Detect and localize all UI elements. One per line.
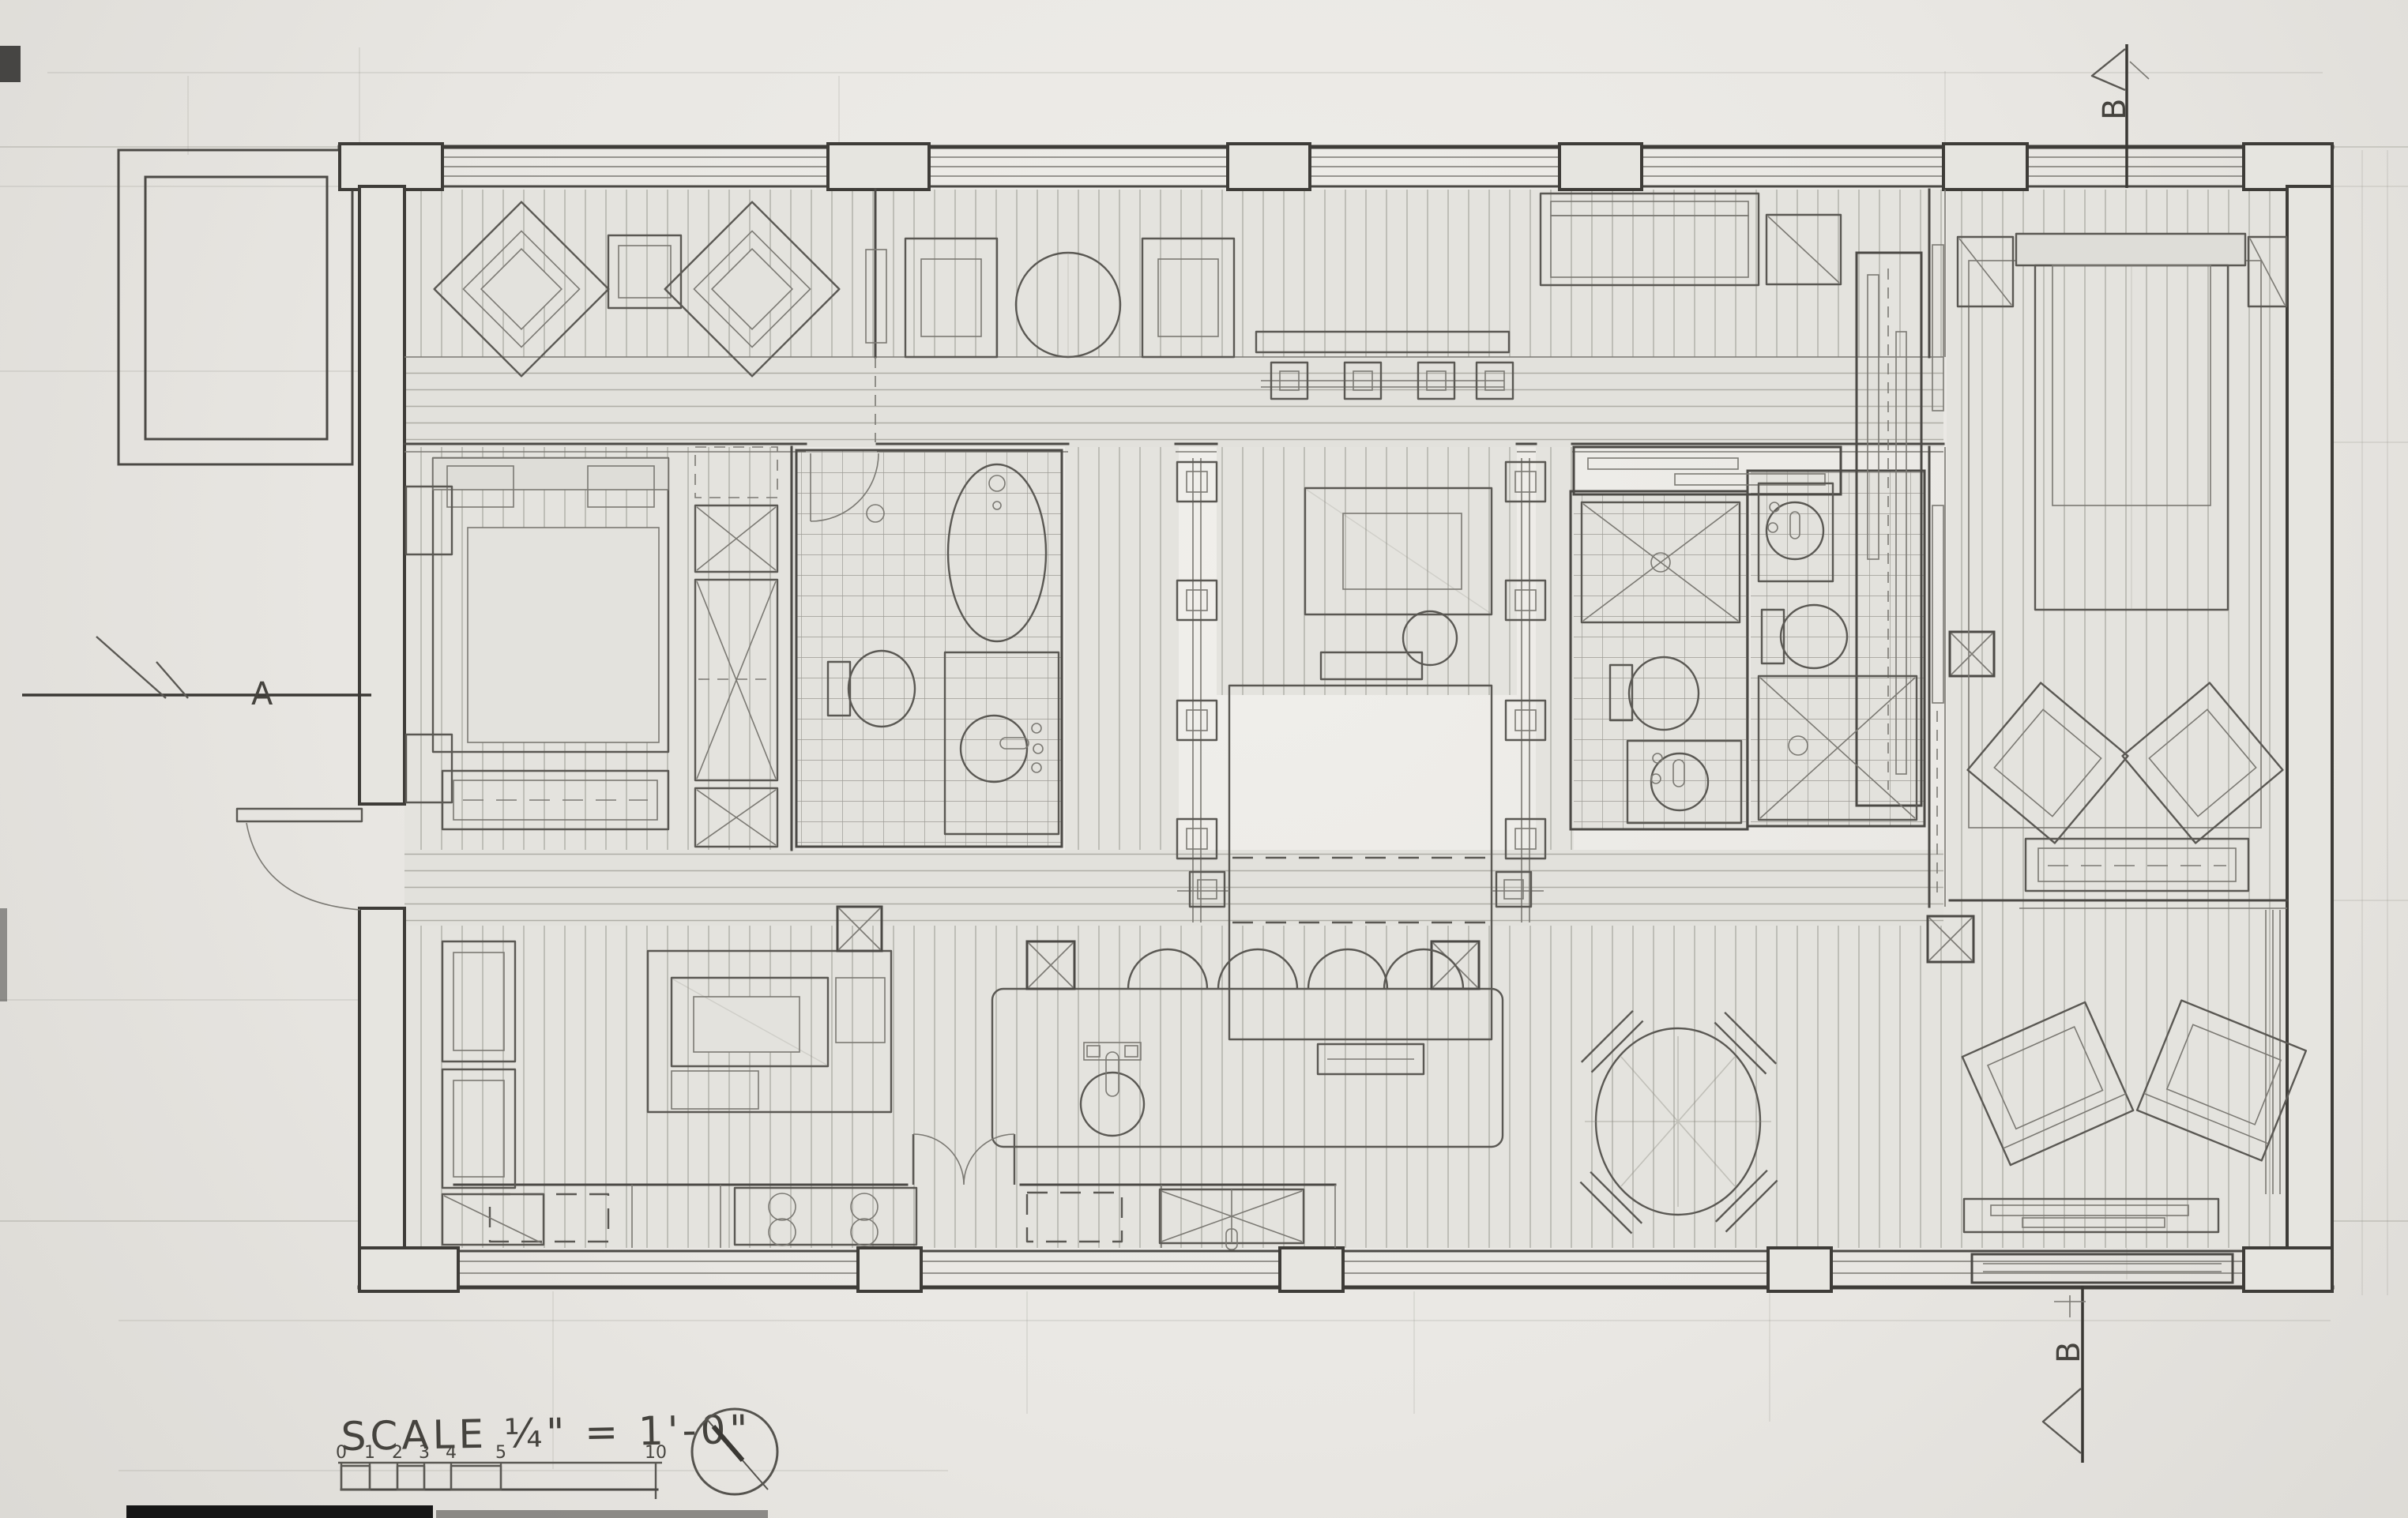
scale-tick-5: 5 — [495, 1443, 506, 1463]
lower-hall-floor — [404, 850, 1943, 926]
master-bath-floor — [796, 450, 1062, 847]
wall-pier — [1768, 1248, 1831, 1291]
wall-pier — [1280, 1248, 1343, 1291]
left-wall-upper — [359, 186, 404, 804]
wall-pier — [340, 144, 442, 190]
window-seat — [1972, 1254, 2233, 1283]
section-label-b-bottom: B — [2051, 1342, 2087, 1363]
porch-tile-floor — [145, 177, 327, 439]
scale-tick-1: 1 — [364, 1443, 375, 1463]
floor-finishes — [404, 190, 2287, 1248]
section-marker-b-bottom: B — [2043, 1286, 2087, 1463]
entry-porch — [119, 150, 352, 464]
floor-plan-drawing: A B B SCALE ¼" = 1'-0" 0 1 2 3 4 5 10 — [0, 0, 2408, 1518]
scale-tick-10: 10 — [645, 1443, 667, 1463]
left-wall-lower — [359, 908, 404, 1251]
scale-tick-4: 4 — [446, 1443, 457, 1463]
scale-tick-3: 3 — [419, 1443, 430, 1463]
upper-hall-floor — [404, 357, 1943, 447]
hall-strip-floor-2 — [1536, 447, 1574, 850]
den-floor — [1217, 447, 1517, 695]
wall-pier — [858, 1248, 921, 1291]
upper-living-floor — [404, 190, 1943, 357]
drafting-sheet: A B B SCALE ¼" = 1'-0" 0 1 2 3 4 5 10 — [0, 0, 2408, 1518]
wall-pier — [828, 144, 929, 190]
wall-pier — [359, 1248, 458, 1291]
entry-door — [237, 809, 362, 910]
wall-pier — [2244, 1248, 2332, 1291]
wall-pier — [2244, 144, 2332, 190]
section-label-b-top: B — [2097, 99, 2133, 120]
section-line-a: A — [22, 637, 371, 712]
scale-tick-0: 0 — [336, 1443, 347, 1463]
wall-pier — [1560, 144, 1642, 190]
wall-pier — [1943, 144, 2027, 190]
right-bedroom-floor — [1947, 190, 2287, 900]
right-wall — [2287, 186, 2332, 1291]
hall-strip-floor — [1065, 447, 1179, 850]
title-scale-block: SCALE ¼" = 1'-0" 0 1 2 3 4 5 10 — [336, 1407, 777, 1499]
section-label-a: A — [251, 676, 273, 712]
wall-pier — [1228, 144, 1310, 190]
scale-tick-2: 2 — [392, 1443, 403, 1463]
